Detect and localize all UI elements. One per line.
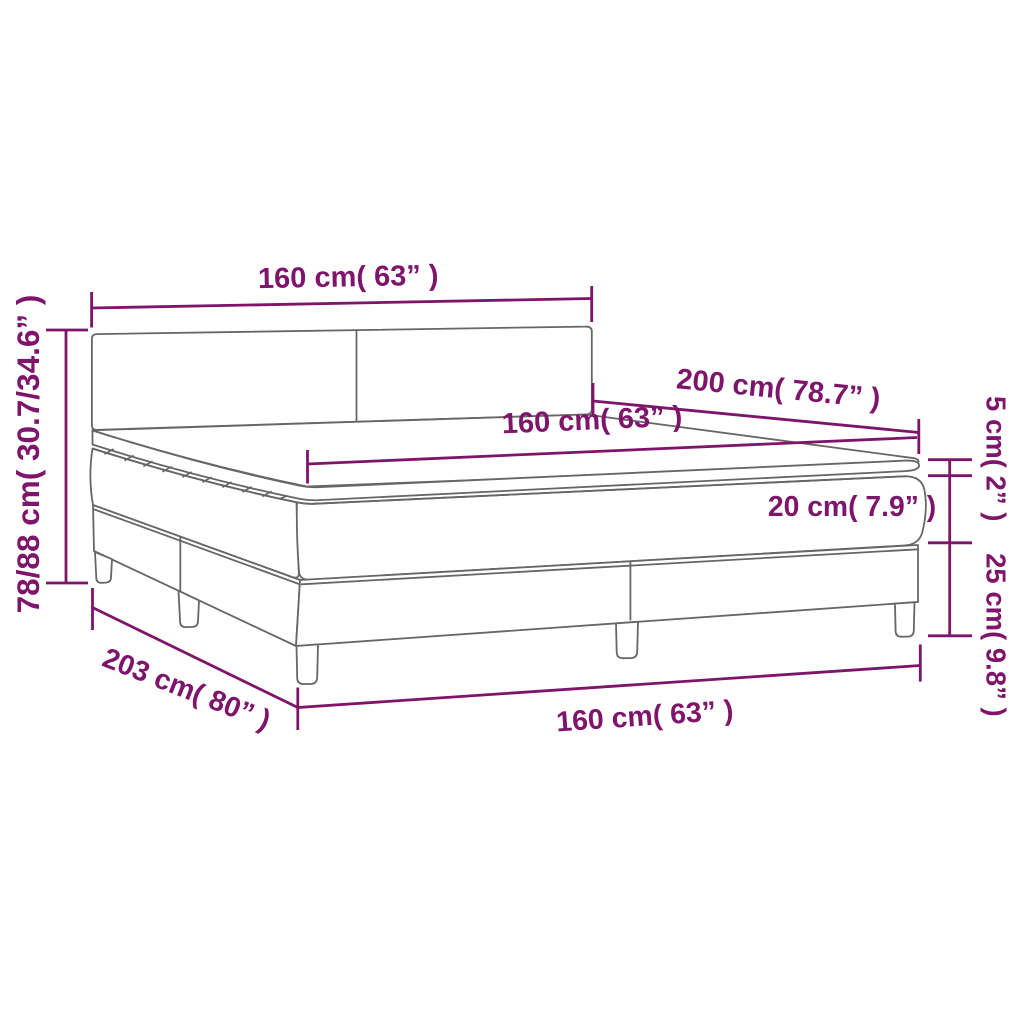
svg-text:25 cm( 9.8” ): 25 cm( 9.8” ) xyxy=(981,553,1012,717)
svg-text:78/88 cm( 30.7/34.6” ): 78/88 cm( 30.7/34.6” ) xyxy=(10,295,46,614)
svg-text:160 cm( 63” ): 160 cm( 63” ) xyxy=(258,260,439,295)
svg-text:20 cm( 7.9” ): 20 cm( 7.9” ) xyxy=(768,490,936,522)
svg-text:5 cm( 2” ): 5 cm( 2” ) xyxy=(981,396,1012,521)
